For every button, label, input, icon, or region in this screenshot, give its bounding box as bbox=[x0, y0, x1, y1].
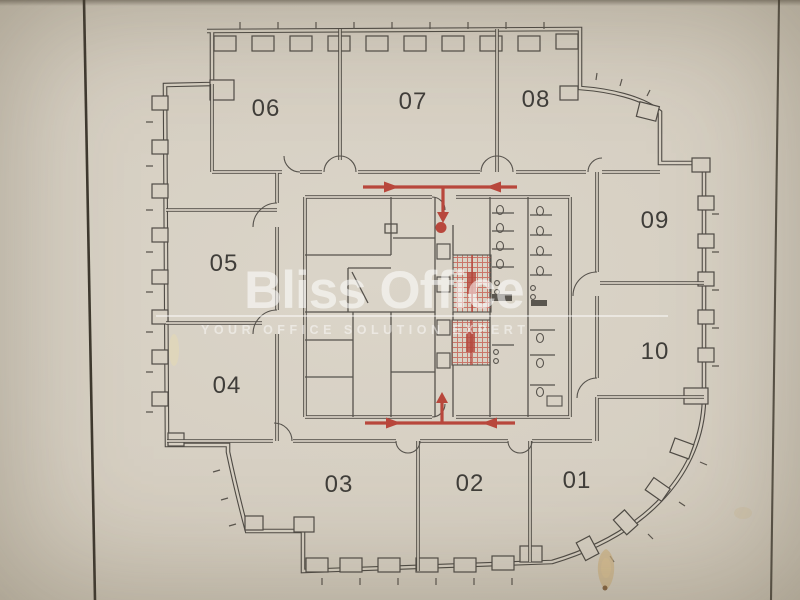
unit-label-10: 10 bbox=[641, 338, 670, 365]
unit-label-09: 09 bbox=[641, 207, 670, 234]
wall-ticks bbox=[146, 22, 719, 585]
lift-doors bbox=[437, 244, 450, 368]
core-interior-walls bbox=[305, 197, 555, 417]
entry-route-south bbox=[365, 392, 515, 429]
frame-line-left bbox=[84, 0, 95, 600]
entry-route-north bbox=[363, 182, 517, 224]
floor-plan-photo: 06 07 08 09 10 05 04 03 02 01 Bliss Offi… bbox=[0, 0, 800, 600]
entry-point-dot bbox=[436, 222, 447, 233]
stairwell-hatch-lower bbox=[452, 320, 490, 365]
unit-label-02: 02 bbox=[456, 470, 485, 497]
unit-label-03: 03 bbox=[325, 471, 354, 498]
unit-label-06: 06 bbox=[252, 95, 281, 122]
unit-label-08: 08 bbox=[522, 86, 551, 113]
frame-line-right bbox=[771, 0, 779, 600]
photo-edge-shadow bbox=[0, 0, 800, 6]
stain bbox=[169, 334, 752, 591]
unit-label-07: 07 bbox=[399, 88, 428, 115]
unit-label-01: 01 bbox=[563, 467, 592, 494]
unit-label-04: 04 bbox=[213, 372, 242, 399]
floor-plan-drawing: 06 07 08 09 10 05 04 03 02 01 bbox=[0, 0, 800, 600]
unit-label-05: 05 bbox=[210, 250, 239, 277]
stairwell-hatch-upper bbox=[453, 255, 491, 312]
